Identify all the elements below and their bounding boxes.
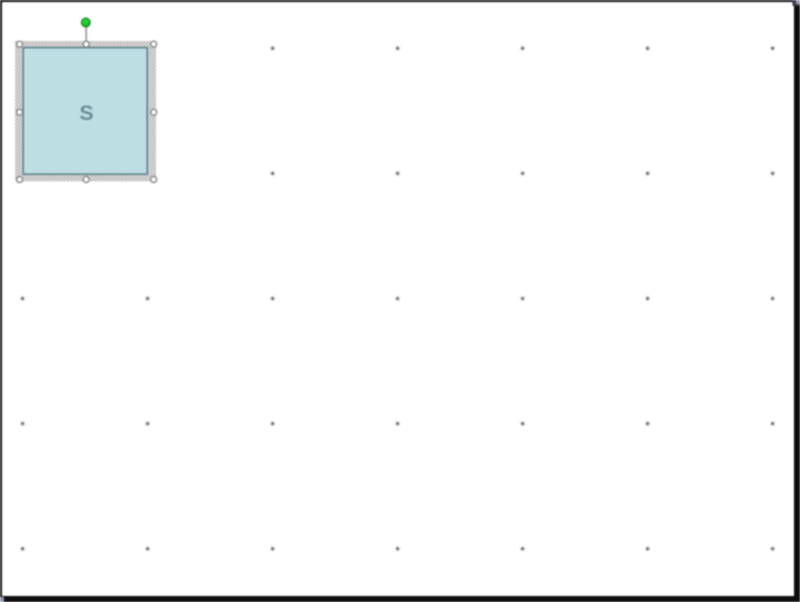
svg-text:S: S (79, 101, 93, 125)
